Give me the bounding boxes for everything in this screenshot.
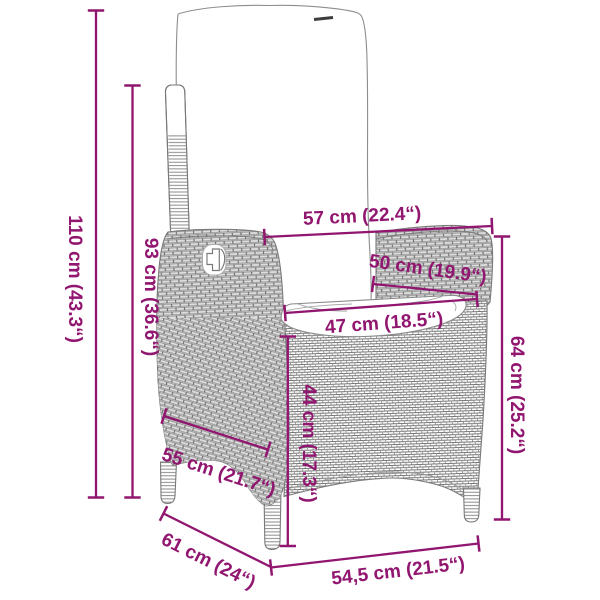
svg-text:44 cm (17.3“): 44 cm (17.3“) (298, 384, 319, 502)
svg-text:93 cm (36.6“): 93 cm (36.6“) (140, 238, 161, 356)
svg-text:64 cm (25.2“): 64 cm (25.2“) (506, 336, 527, 454)
svg-text:110 cm (43.3“): 110 cm (43.3“) (64, 215, 85, 343)
